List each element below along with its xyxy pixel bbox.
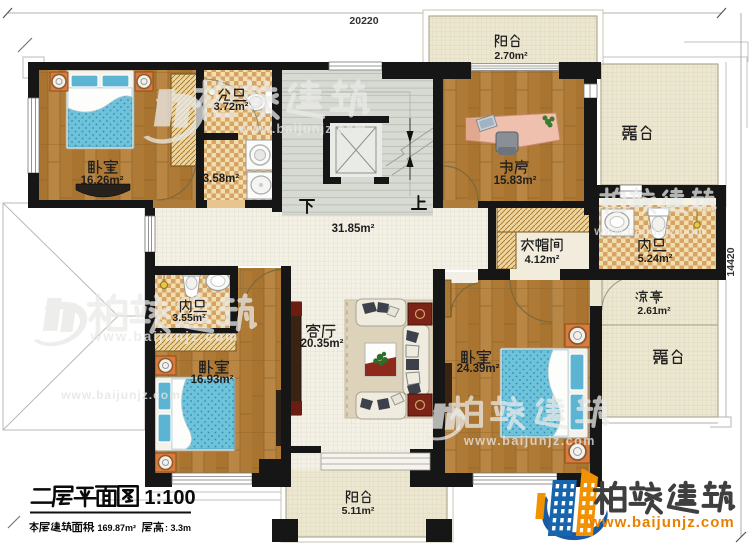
svg-text:31.85m²: 31.85m² xyxy=(332,223,375,235)
svg-text:16.26m²: 16.26m² xyxy=(81,175,124,187)
svg-text:www.baijunjz.com: www.baijunjz.com xyxy=(593,224,706,238)
svg-text:5.11m²: 5.11m² xyxy=(342,505,375,517)
svg-text:2.61m²: 2.61m² xyxy=(637,305,671,317)
svg-text:: 169.87m²: : 169.87m² xyxy=(92,523,136,533)
svg-text:20.35m²: 20.35m² xyxy=(301,338,344,350)
svg-text:3.72m²: 3.72m² xyxy=(214,101,249,113)
svg-text:14420: 14420 xyxy=(725,247,737,276)
svg-text:3.58m²: 3.58m² xyxy=(203,173,240,185)
svg-text:www.baijunjz.com: www.baijunjz.com xyxy=(588,514,734,531)
svg-text:24.39m²: 24.39m² xyxy=(457,363,500,375)
svg-text:3.55m²: 3.55m² xyxy=(172,312,206,324)
svg-text:15.83m²: 15.83m² xyxy=(494,175,537,187)
svg-text:www.baijunjz.com: www.baijunjz.com xyxy=(463,434,596,448)
svg-text:: 3.3m: : 3.3m xyxy=(165,523,191,533)
svg-text:1:100: 1:100 xyxy=(144,487,195,509)
svg-text:www.baijunjz.com: www.baijunjz.com xyxy=(60,388,181,402)
svg-text:16.93m²: 16.93m² xyxy=(191,374,234,386)
svg-text:www.baijunjz.com: www.baijunjz.com xyxy=(238,121,367,136)
svg-text:2.70m²: 2.70m² xyxy=(494,50,528,62)
svg-text:4.12m²: 4.12m² xyxy=(525,254,560,266)
svg-text:20220: 20220 xyxy=(349,15,378,27)
svg-text:5.24m²: 5.24m² xyxy=(638,253,673,265)
svg-text:www.baijunjz.com: www.baijunjz.com xyxy=(90,329,240,344)
